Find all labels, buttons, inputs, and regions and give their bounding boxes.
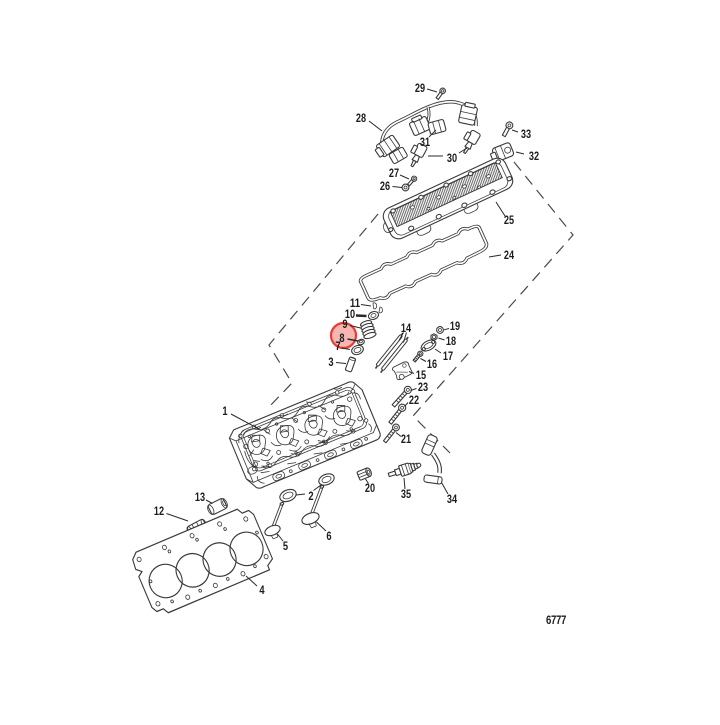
svg-text:23: 23 xyxy=(418,380,428,394)
svg-text:27: 27 xyxy=(389,166,399,180)
svg-text:2: 2 xyxy=(308,489,313,503)
svg-text:3: 3 xyxy=(328,355,333,369)
svg-text:5: 5 xyxy=(283,539,288,553)
svg-text:18: 18 xyxy=(446,334,456,348)
svg-text:20: 20 xyxy=(365,481,375,495)
svg-text:9: 9 xyxy=(342,317,347,331)
svg-text:29: 29 xyxy=(415,81,425,95)
svg-text:17: 17 xyxy=(443,349,453,363)
svg-text:13: 13 xyxy=(195,490,205,504)
svg-text:22: 22 xyxy=(409,393,419,407)
svg-text:31: 31 xyxy=(420,135,430,149)
svg-text:4: 4 xyxy=(259,583,264,597)
svg-text:34: 34 xyxy=(447,492,457,506)
svg-text:25: 25 xyxy=(504,213,514,227)
svg-text:26: 26 xyxy=(380,179,390,193)
svg-text:12: 12 xyxy=(154,504,164,518)
svg-text:16: 16 xyxy=(427,357,437,371)
svg-text:30: 30 xyxy=(447,151,457,165)
svg-text:7: 7 xyxy=(335,339,340,353)
svg-text:28: 28 xyxy=(356,111,366,125)
svg-text:21: 21 xyxy=(401,432,411,446)
svg-text:6777: 6777 xyxy=(546,615,566,627)
svg-text:1: 1 xyxy=(222,404,227,418)
svg-text:33: 33 xyxy=(521,127,531,141)
svg-text:24: 24 xyxy=(504,248,514,262)
svg-text:6: 6 xyxy=(326,529,331,543)
svg-text:14: 14 xyxy=(401,321,411,335)
svg-text:19: 19 xyxy=(450,319,460,333)
svg-text:32: 32 xyxy=(529,149,539,163)
svg-text:35: 35 xyxy=(401,487,411,501)
